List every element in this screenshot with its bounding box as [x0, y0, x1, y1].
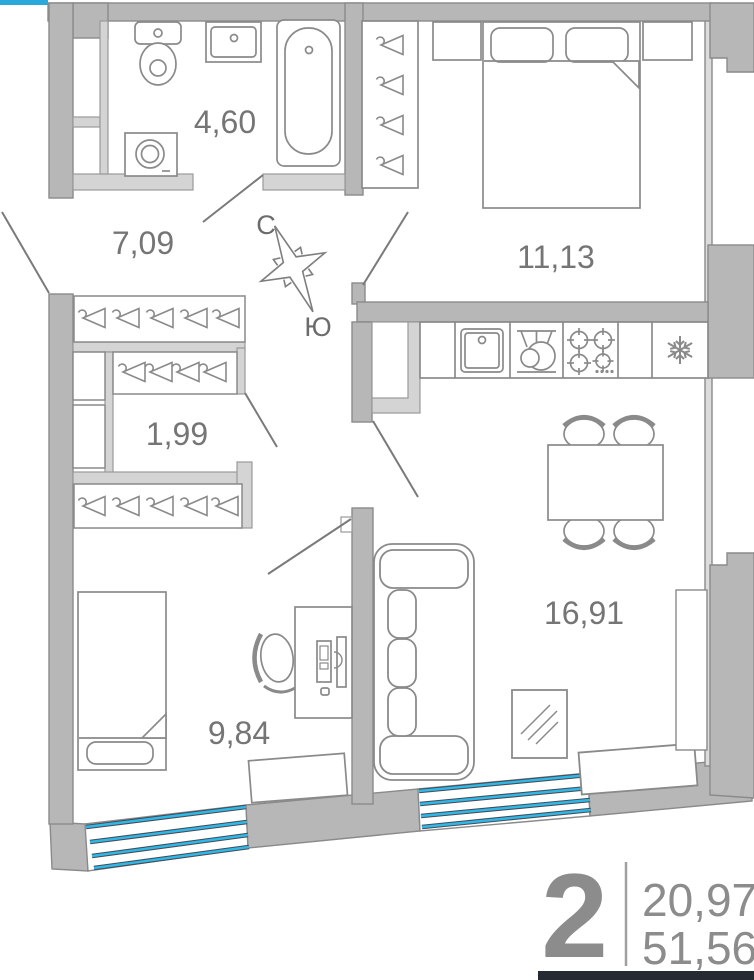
bathtub-icon — [277, 20, 340, 166]
wall-bedroom-door-jamb — [352, 283, 365, 304]
partition-closet-top — [73, 342, 245, 352]
double-bed-icon — [483, 22, 640, 208]
closet-door — [245, 393, 277, 447]
wall-living-right — [710, 553, 754, 798]
nightstand-left — [433, 22, 481, 60]
wall-corner-left — [50, 822, 88, 871]
partition-niche-vertical — [100, 21, 108, 174]
closet-shelf-2 — [73, 405, 105, 468]
room-count: 2 — [541, 849, 608, 980]
compass-south-label: Ю — [304, 312, 331, 342]
partition-closet-bottom — [73, 472, 245, 484]
sink-icon — [206, 22, 261, 62]
kitchen-shaft-inner — [372, 322, 408, 398]
living-bench — [579, 744, 698, 795]
area-bathroom: 4,60 — [194, 104, 256, 140]
wall-top — [48, 3, 712, 21]
toilet-icon — [135, 22, 181, 85]
dining-set — [548, 418, 663, 548]
floor-plan: С Ю 4,60 7,09 1,99 11,13 16,91 9,84 2 20… — [0, 0, 754, 980]
closet-fixtures — [73, 296, 245, 528]
washing-machine-icon — [125, 133, 177, 176]
single-bed-icon — [78, 592, 166, 770]
partition-closet-right — [237, 348, 245, 394]
floor-plan-page: С Ю 4,60 7,09 1,99 11,13 16,91 9,84 2 20… — [0, 0, 754, 980]
area-bedroom-1: 11,13 — [517, 239, 595, 275]
desk-icon — [295, 607, 352, 718]
bedroom2-bench — [249, 753, 348, 802]
pilaster-kitchen-right — [708, 245, 754, 378]
kitchen-door — [373, 421, 418, 497]
bedroom-2-furniture — [78, 592, 352, 803]
dining-table — [548, 445, 663, 520]
bathroom-door — [203, 175, 263, 222]
bedroom-1-furniture — [362, 21, 692, 208]
total-area-value: 51,56 — [642, 922, 754, 974]
wall-left-lower — [49, 294, 73, 824]
office-chair-icon — [255, 632, 297, 692]
apartment-summary: 2 20,97 51,56 — [538, 849, 754, 980]
wall-bathroom-right — [345, 3, 363, 195]
partition-bathroom-right — [263, 174, 345, 190]
wall-bedroom-kitchen — [357, 302, 708, 322]
bedroom-1-door — [363, 212, 408, 285]
wall-left-upper — [49, 3, 73, 198]
partition-niche-divider — [73, 117, 100, 127]
bedroom-2-door — [268, 519, 351, 574]
partition-closet-left — [105, 352, 113, 482]
area-living: 16,91 — [544, 595, 624, 631]
tv-unit-icon — [512, 690, 567, 758]
area-closet: 1,99 — [146, 416, 208, 452]
compass-rose-icon: С Ю — [243, 210, 345, 342]
wall-kitchen-shaft — [352, 322, 372, 422]
footer-bar — [538, 971, 754, 980]
living-area-value: 20,97 — [642, 874, 754, 926]
wall-bedroom2-living — [352, 508, 373, 804]
kitchen-counter — [420, 322, 708, 378]
radiator — [676, 590, 707, 750]
area-hallway: 7,09 — [112, 225, 174, 261]
bathroom-fixtures — [125, 20, 340, 176]
living-room-furniture — [374, 544, 707, 794]
kitchen-fixtures — [420, 322, 708, 378]
sofa-icon — [374, 544, 474, 780]
pilaster-top-right — [710, 3, 754, 72]
closet-shelf-1 — [73, 352, 105, 400]
accent-strip — [0, 0, 48, 5]
nightstand-right — [643, 22, 692, 60]
area-bedroom-2: 9,84 — [208, 715, 270, 751]
entrance-door — [2, 212, 49, 293]
compass-north-label: С — [256, 210, 276, 240]
